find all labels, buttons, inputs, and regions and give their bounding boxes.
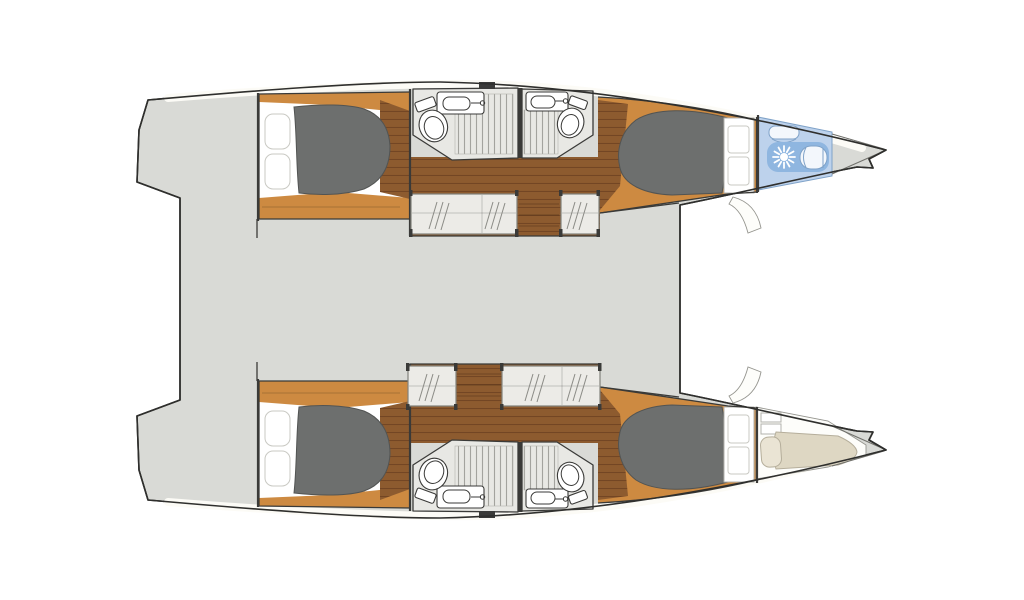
wardrobe: [411, 194, 517, 234]
stbd-bow-berth: [756, 407, 866, 481]
catamaran-floor-plan-canvas: [0, 0, 1024, 600]
pillow: [760, 436, 782, 467]
toilet: [800, 146, 827, 169]
port-hull: [257, 82, 884, 238]
catamaran-floor-plan: [0, 0, 1024, 600]
starboard-hull: [257, 362, 884, 518]
port-wardrobes: [409, 190, 600, 237]
stbd-wardrobes: [406, 363, 602, 410]
